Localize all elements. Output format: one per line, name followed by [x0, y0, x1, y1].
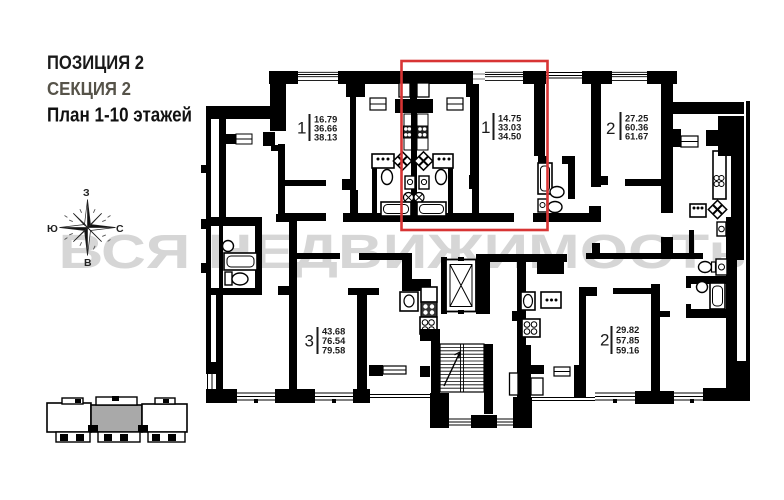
svg-text:61.67: 61.67	[625, 132, 648, 142]
svg-text:Ю: Ю	[47, 223, 58, 235]
svg-text:43.68: 43.68	[322, 326, 345, 336]
svg-text:ПОЗИЦИЯ 2: ПОЗИЦИЯ 2	[47, 52, 144, 74]
svg-text:1: 1	[297, 119, 306, 138]
svg-text:38.13: 38.13	[314, 133, 337, 143]
svg-text:СЕКЦИЯ 2: СЕКЦИЯ 2	[47, 78, 131, 99]
svg-text:79.58: 79.58	[322, 346, 345, 356]
svg-text:29.82: 29.82	[616, 325, 639, 335]
svg-text:34.50: 34.50	[498, 132, 521, 142]
svg-text:1: 1	[481, 118, 490, 137]
svg-text:С: С	[116, 223, 124, 235]
svg-text:2: 2	[600, 331, 609, 350]
svg-text:76.54: 76.54	[322, 336, 346, 346]
svg-text:З: З	[83, 187, 90, 199]
svg-text:План 1-10 этажей: План 1-10 этажей	[47, 105, 192, 127]
svg-text:В: В	[84, 257, 92, 269]
svg-text:3: 3	[305, 332, 314, 351]
svg-text:57.85: 57.85	[616, 336, 639, 346]
svg-text:59.16: 59.16	[616, 345, 639, 355]
svg-text:2: 2	[606, 119, 615, 138]
